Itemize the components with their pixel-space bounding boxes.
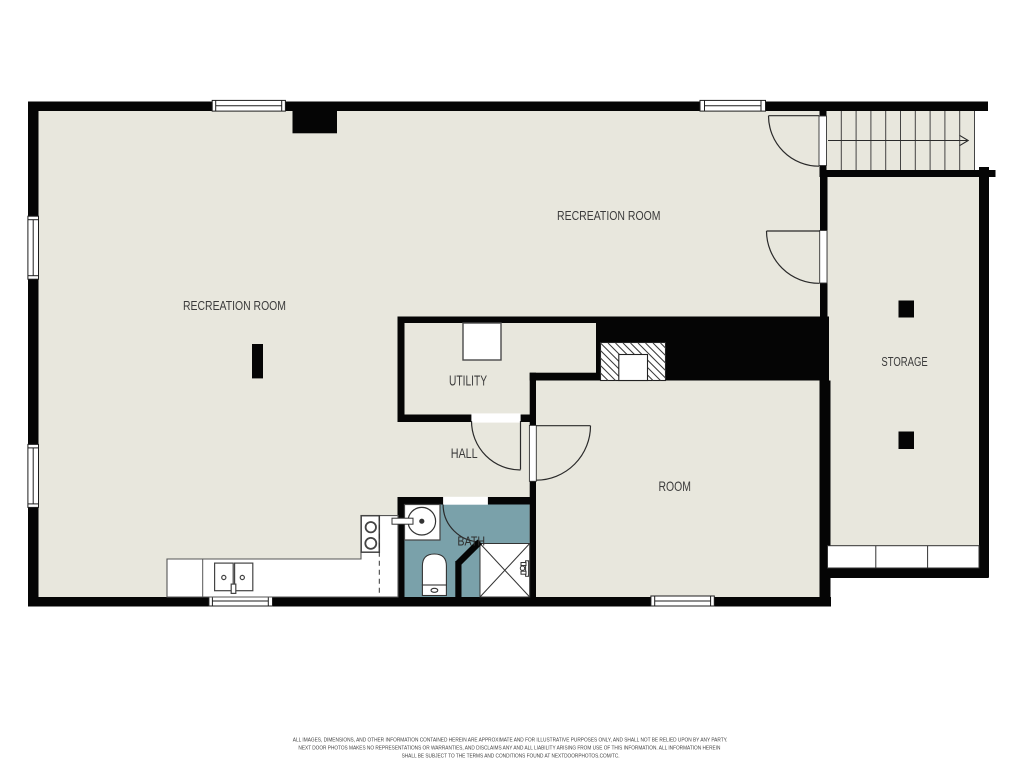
svg-text:SHALL BE SUBJECT TO THE TERMS: SHALL BE SUBJECT TO THE TERMS AND CONDIT… <box>402 754 620 760</box>
svg-text:BATH: BATH <box>457 534 485 549</box>
svg-text:UTILITY: UTILITY <box>449 374 487 390</box>
svg-text:ROOM: ROOM <box>659 478 692 494</box>
svg-text:STORAGE: STORAGE <box>881 354 928 369</box>
svg-text:RECREATION ROOM: RECREATION ROOM <box>183 298 286 313</box>
svg-text:ALL IMAGES, DIMENSIONS, AND OT: ALL IMAGES, DIMENSIONS, AND OTHER INFORM… <box>293 738 728 744</box>
svg-text:NEXT DOOR PHOTOS MAKES NO REPR: NEXT DOOR PHOTOS MAKES NO REPRESENTATION… <box>298 746 720 752</box>
svg-text:HALL: HALL <box>451 445 478 461</box>
svg-text:RECREATION ROOM: RECREATION ROOM <box>557 208 661 223</box>
